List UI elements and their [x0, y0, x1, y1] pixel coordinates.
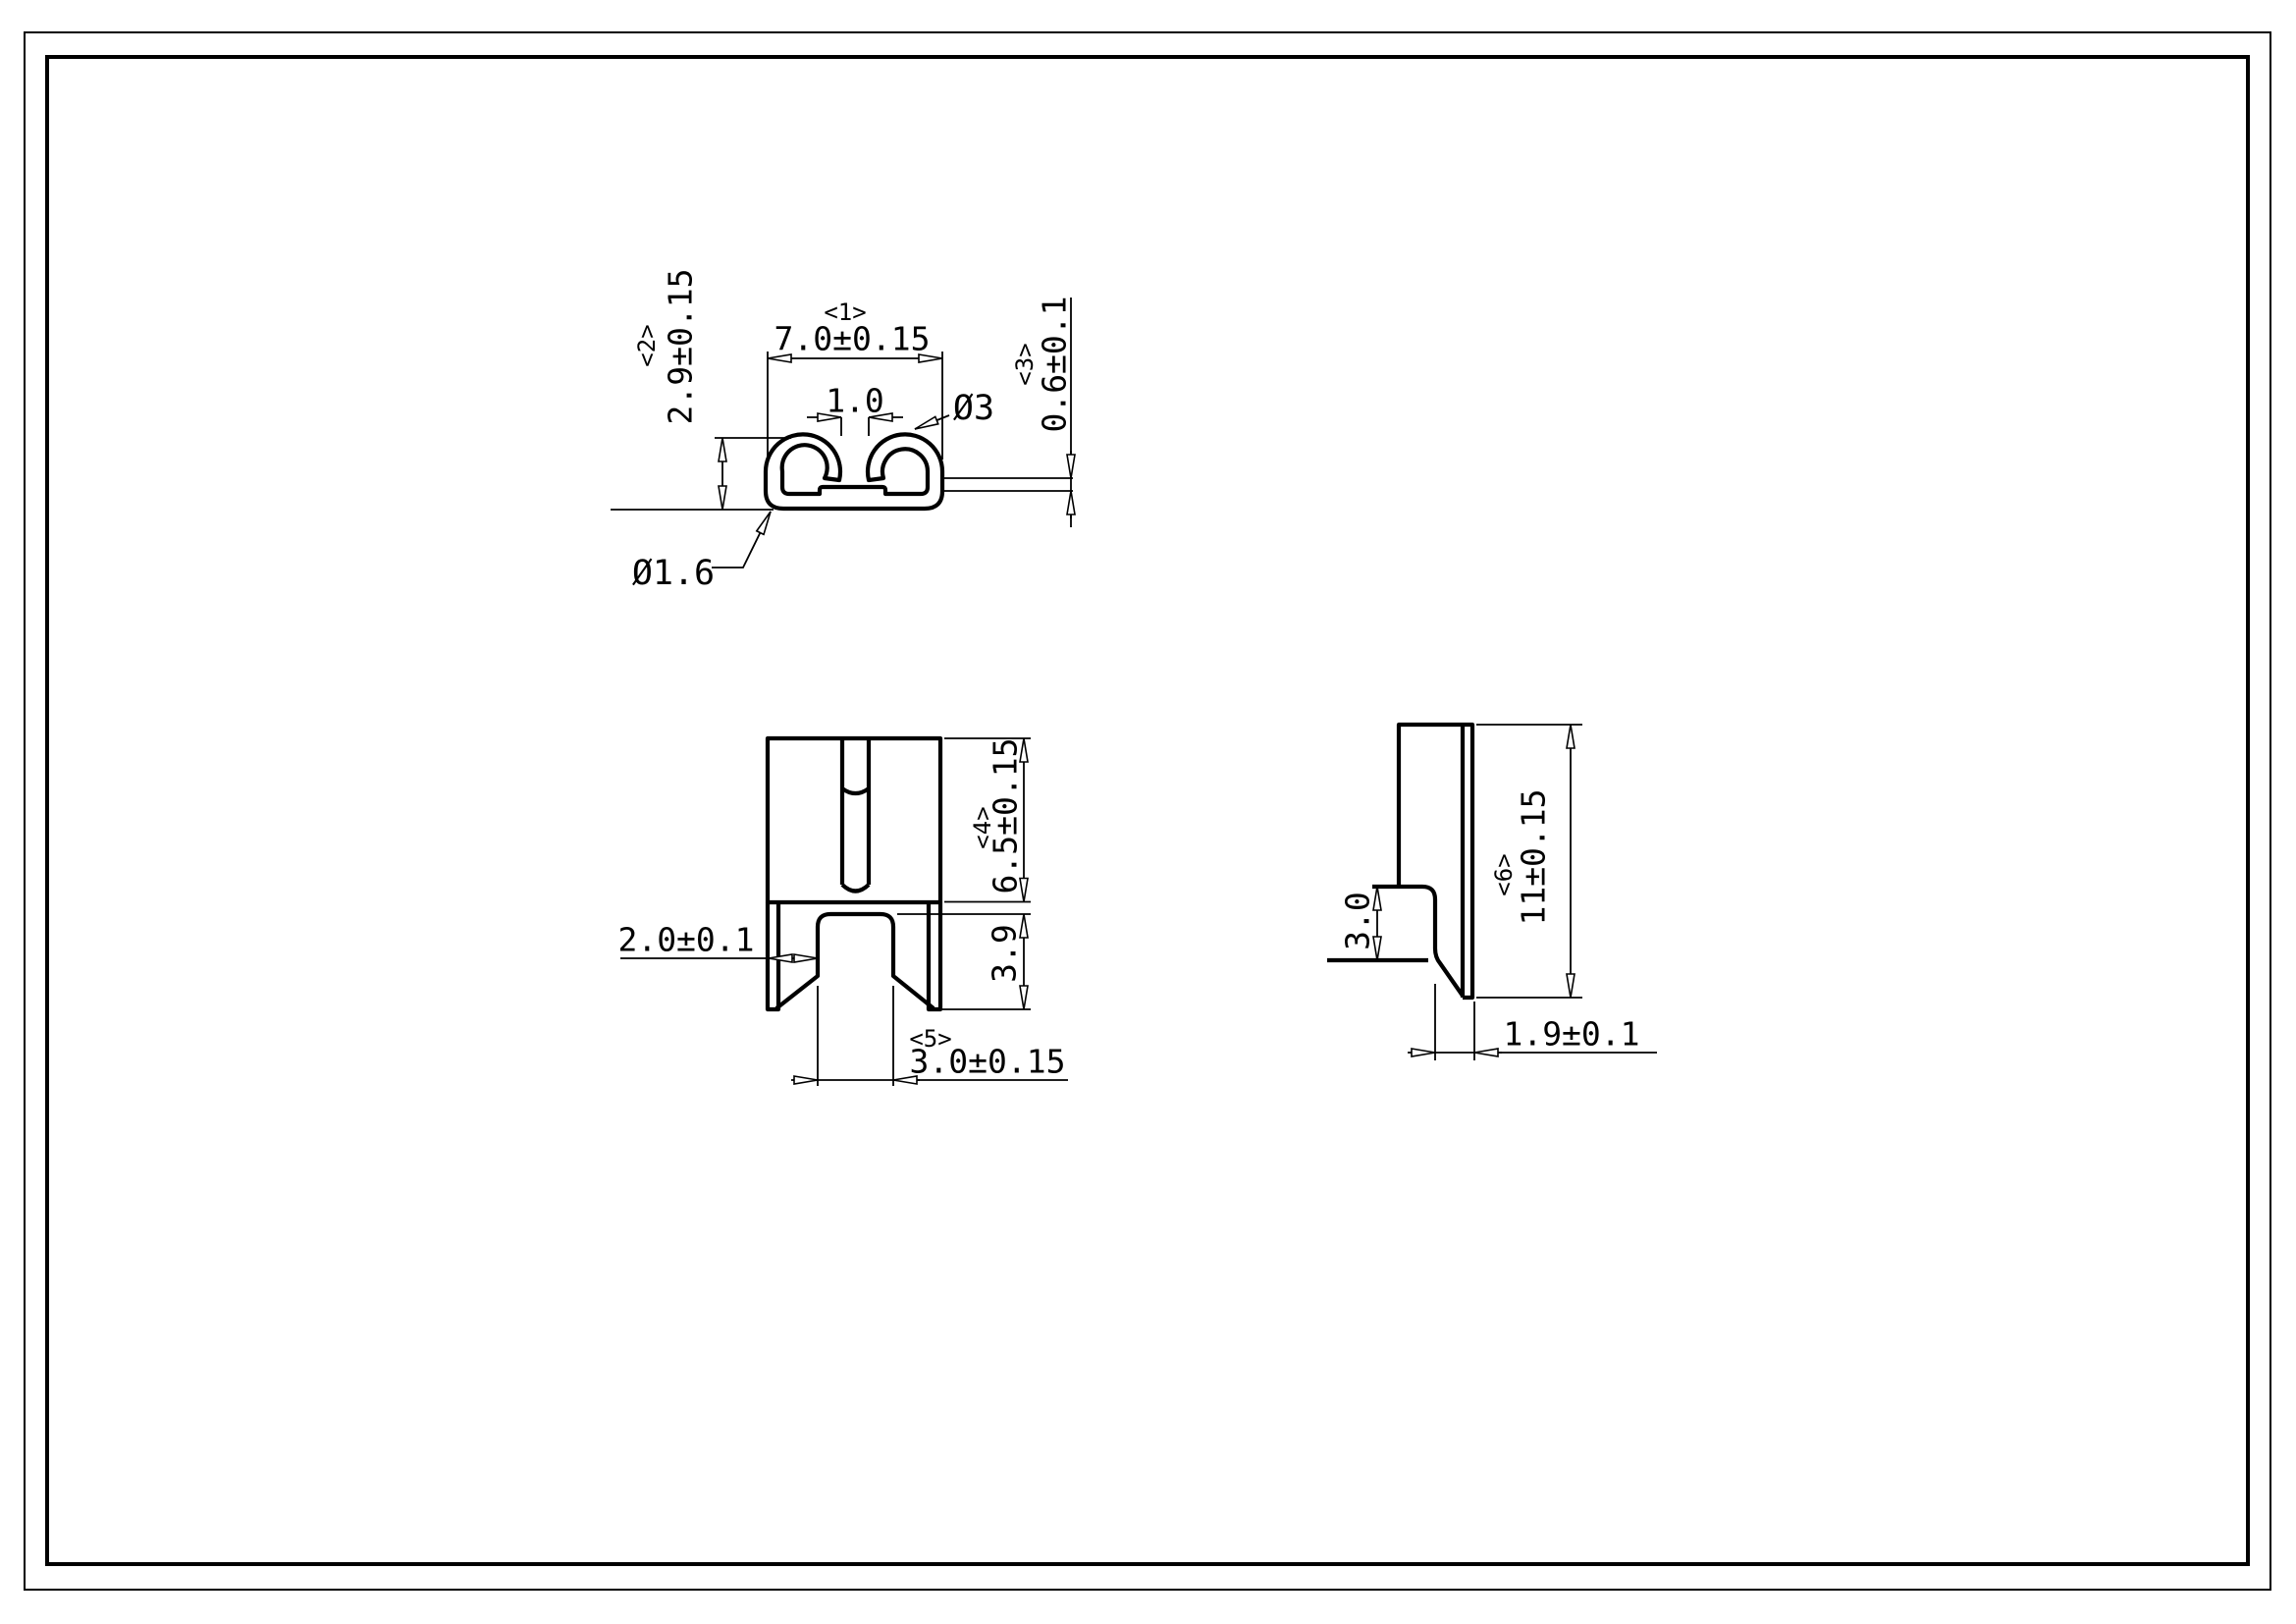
engineering-drawing-sheet: <1> 7.0±0.15 1.0 <2> 2.9±0.15 <3> 0.6±0.… [0, 0, 2296, 1624]
top-view-gap-value: 1.0 [826, 382, 884, 420]
side-view-tab-offset-value: 1.9±0.1 [1503, 1015, 1639, 1054]
front-view-center-tab [776, 914, 934, 1008]
sheet-border-outer [25, 32, 2270, 1590]
top-view-width-value: 7.0±0.15 [774, 320, 931, 358]
front-view-body-outline [768, 738, 940, 902]
top-view-profile-outline [766, 434, 942, 509]
front-view-body-height-value: 6.5±0.15 [987, 738, 1025, 894]
front-view: 2.0±0.1 <4> 6.5±0.15 3.9 <5> 3.0±0.15 [617, 738, 1068, 1086]
side-view-step-height-value: 3.0 [1339, 892, 1377, 950]
top-view-depth-value: 2.9±0.15 [662, 269, 700, 425]
leader-hook-diameter [915, 415, 949, 429]
top-view-corner-diameter-value: Ø1.6 [632, 554, 715, 593]
front-view-center-slot [842, 738, 869, 892]
front-view-tab-width-value: 3.0±0.15 [910, 1043, 1066, 1081]
front-view-leg-height-value: 3.9 [986, 924, 1024, 983]
front-view-leg-tab-gap-value: 2.0±0.1 [617, 921, 754, 959]
sheet-border-inner [47, 57, 2248, 1564]
leader-corner-diameter [712, 512, 771, 568]
top-view-hook-diameter-value: Ø3 [953, 389, 994, 428]
top-view: <1> 7.0±0.15 1.0 <2> 2.9±0.15 <3> 0.6±0.… [611, 269, 1074, 593]
side-view: 3.0 <6> 11±0.15 1.9±0.1 [1327, 725, 1657, 1060]
top-view-thickness-value: 0.6±0.1 [1036, 296, 1074, 432]
top-view-depth-index: <2> [633, 324, 661, 366]
side-view-total-height-value: 11±0.15 [1515, 788, 1553, 925]
